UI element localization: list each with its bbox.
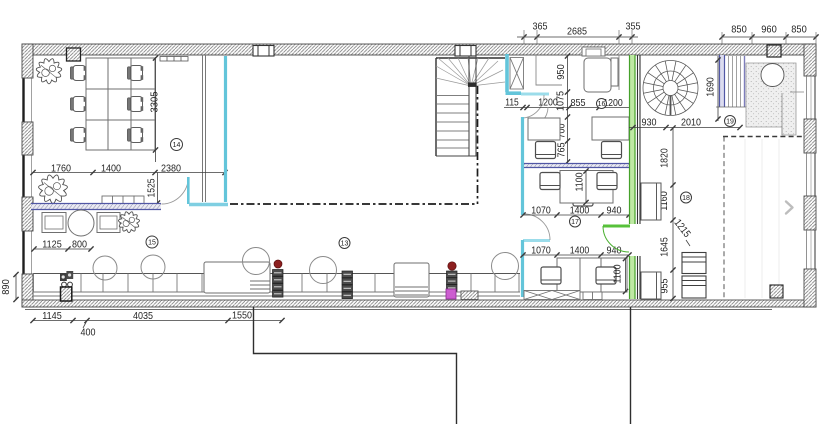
svg-text:1400: 1400 <box>101 163 121 174</box>
svg-text:855: 855 <box>571 98 586 109</box>
svg-text:17: 17 <box>571 219 579 226</box>
svg-text:14: 14 <box>173 142 181 149</box>
svg-text:2380: 2380 <box>161 163 181 174</box>
svg-text:950: 950 <box>556 64 567 80</box>
svg-text:940: 940 <box>607 205 622 216</box>
svg-text:1690: 1690 <box>706 77 717 97</box>
svg-text:1645: 1645 <box>660 237 671 257</box>
svg-text:1525: 1525 <box>147 178 158 197</box>
svg-text:400: 400 <box>81 327 96 338</box>
svg-text:1070: 1070 <box>531 245 551 256</box>
svg-text:19: 19 <box>726 118 734 125</box>
svg-text:1100: 1100 <box>575 172 586 191</box>
svg-text:13: 13 <box>341 240 349 247</box>
svg-text:1400: 1400 <box>570 245 590 256</box>
svg-text:365: 365 <box>533 21 548 32</box>
svg-text:16: 16 <box>598 101 606 108</box>
svg-text:1200: 1200 <box>538 97 558 108</box>
svg-text:2685: 2685 <box>567 26 587 37</box>
svg-text:1760: 1760 <box>51 163 71 174</box>
svg-text:890: 890 <box>1 279 12 295</box>
svg-text:3305: 3305 <box>150 91 161 112</box>
svg-text:960: 960 <box>761 24 777 35</box>
svg-text:1820: 1820 <box>660 148 671 168</box>
svg-text:355: 355 <box>626 21 641 32</box>
svg-text:1125: 1125 <box>42 239 62 250</box>
svg-text:2010: 2010 <box>681 117 701 128</box>
svg-text:115: 115 <box>505 97 519 108</box>
svg-text:1070: 1070 <box>531 205 551 216</box>
svg-text:930: 930 <box>642 117 657 128</box>
svg-text:1100: 1100 <box>613 264 624 283</box>
svg-text:1145: 1145 <box>42 311 62 322</box>
svg-text:18: 18 <box>682 195 690 202</box>
svg-text:800: 800 <box>72 239 87 250</box>
svg-text:765: 765 <box>557 142 568 157</box>
svg-text:850: 850 <box>791 24 807 35</box>
svg-text:850: 850 <box>731 24 747 35</box>
svg-text:15: 15 <box>148 239 156 246</box>
svg-text:4035: 4035 <box>133 311 153 322</box>
svg-text:1400: 1400 <box>570 205 590 216</box>
svg-text:1550: 1550 <box>232 310 252 321</box>
